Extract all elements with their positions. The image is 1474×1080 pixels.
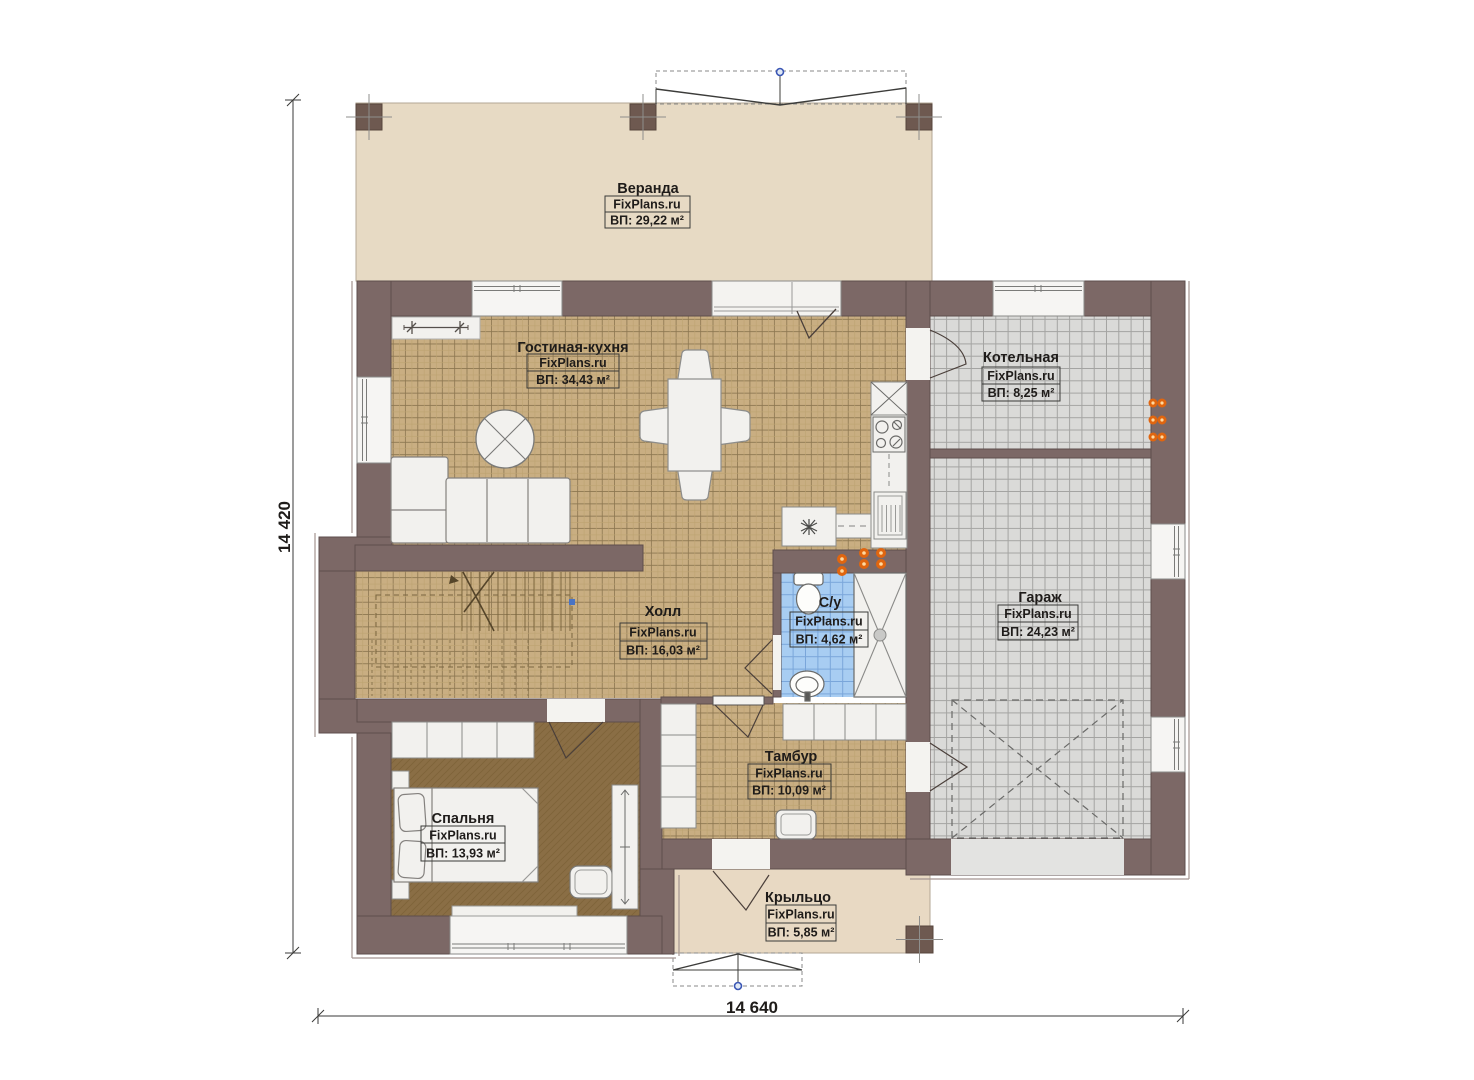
svg-text:FixPlans.ru: FixPlans.ru bbox=[539, 356, 606, 370]
svg-text:14 640: 14 640 bbox=[726, 998, 778, 1017]
svg-text:FixPlans.ru: FixPlans.ru bbox=[987, 369, 1054, 383]
svg-text:ВП: 4,62 м²: ВП: 4,62 м² bbox=[796, 633, 863, 647]
svg-text:FixPlans.ru: FixPlans.ru bbox=[767, 908, 834, 922]
svg-text:ВП: 8,25 м²: ВП: 8,25 м² bbox=[988, 386, 1055, 400]
svg-text:14 420: 14 420 bbox=[275, 501, 294, 553]
svg-text:FixPlans.ru: FixPlans.ru bbox=[795, 615, 862, 629]
svg-text:Тамбур: Тамбур bbox=[765, 749, 818, 765]
svg-text:Спальня: Спальня bbox=[432, 811, 495, 827]
svg-text:ВП: 34,43 м²: ВП: 34,43 м² bbox=[536, 373, 610, 387]
svg-text:ВП: 5,85 м²: ВП: 5,85 м² bbox=[768, 926, 835, 940]
svg-text:FixPlans.ru: FixPlans.ru bbox=[1004, 607, 1071, 621]
svg-text:Котельная: Котельная bbox=[983, 350, 1059, 366]
svg-text:FixPlans.ru: FixPlans.ru bbox=[755, 767, 822, 781]
svg-text:Гараж: Гараж bbox=[1018, 590, 1062, 606]
svg-text:ВП: 10,09 м²: ВП: 10,09 м² bbox=[752, 784, 826, 798]
svg-text:Крыльцо: Крыльцо bbox=[765, 890, 831, 906]
svg-text:FixPlans.ru: FixPlans.ru bbox=[429, 829, 496, 843]
svg-text:ВП: 24,23 м²: ВП: 24,23 м² bbox=[1001, 625, 1075, 639]
svg-text:С/у: С/у bbox=[819, 595, 842, 611]
svg-text:ВП: 16,03 м²: ВП: 16,03 м² bbox=[626, 644, 700, 658]
svg-text:Холл: Холл bbox=[645, 604, 681, 620]
svg-text:ВП: 13,93 м²: ВП: 13,93 м² bbox=[426, 847, 500, 861]
svg-text:FixPlans.ru: FixPlans.ru bbox=[629, 626, 696, 640]
svg-text:Веранда: Веранда bbox=[617, 181, 679, 197]
svg-text:ВП: 29,22 м²: ВП: 29,22 м² bbox=[610, 214, 684, 228]
svg-text:FixPlans.ru: FixPlans.ru bbox=[613, 198, 680, 212]
